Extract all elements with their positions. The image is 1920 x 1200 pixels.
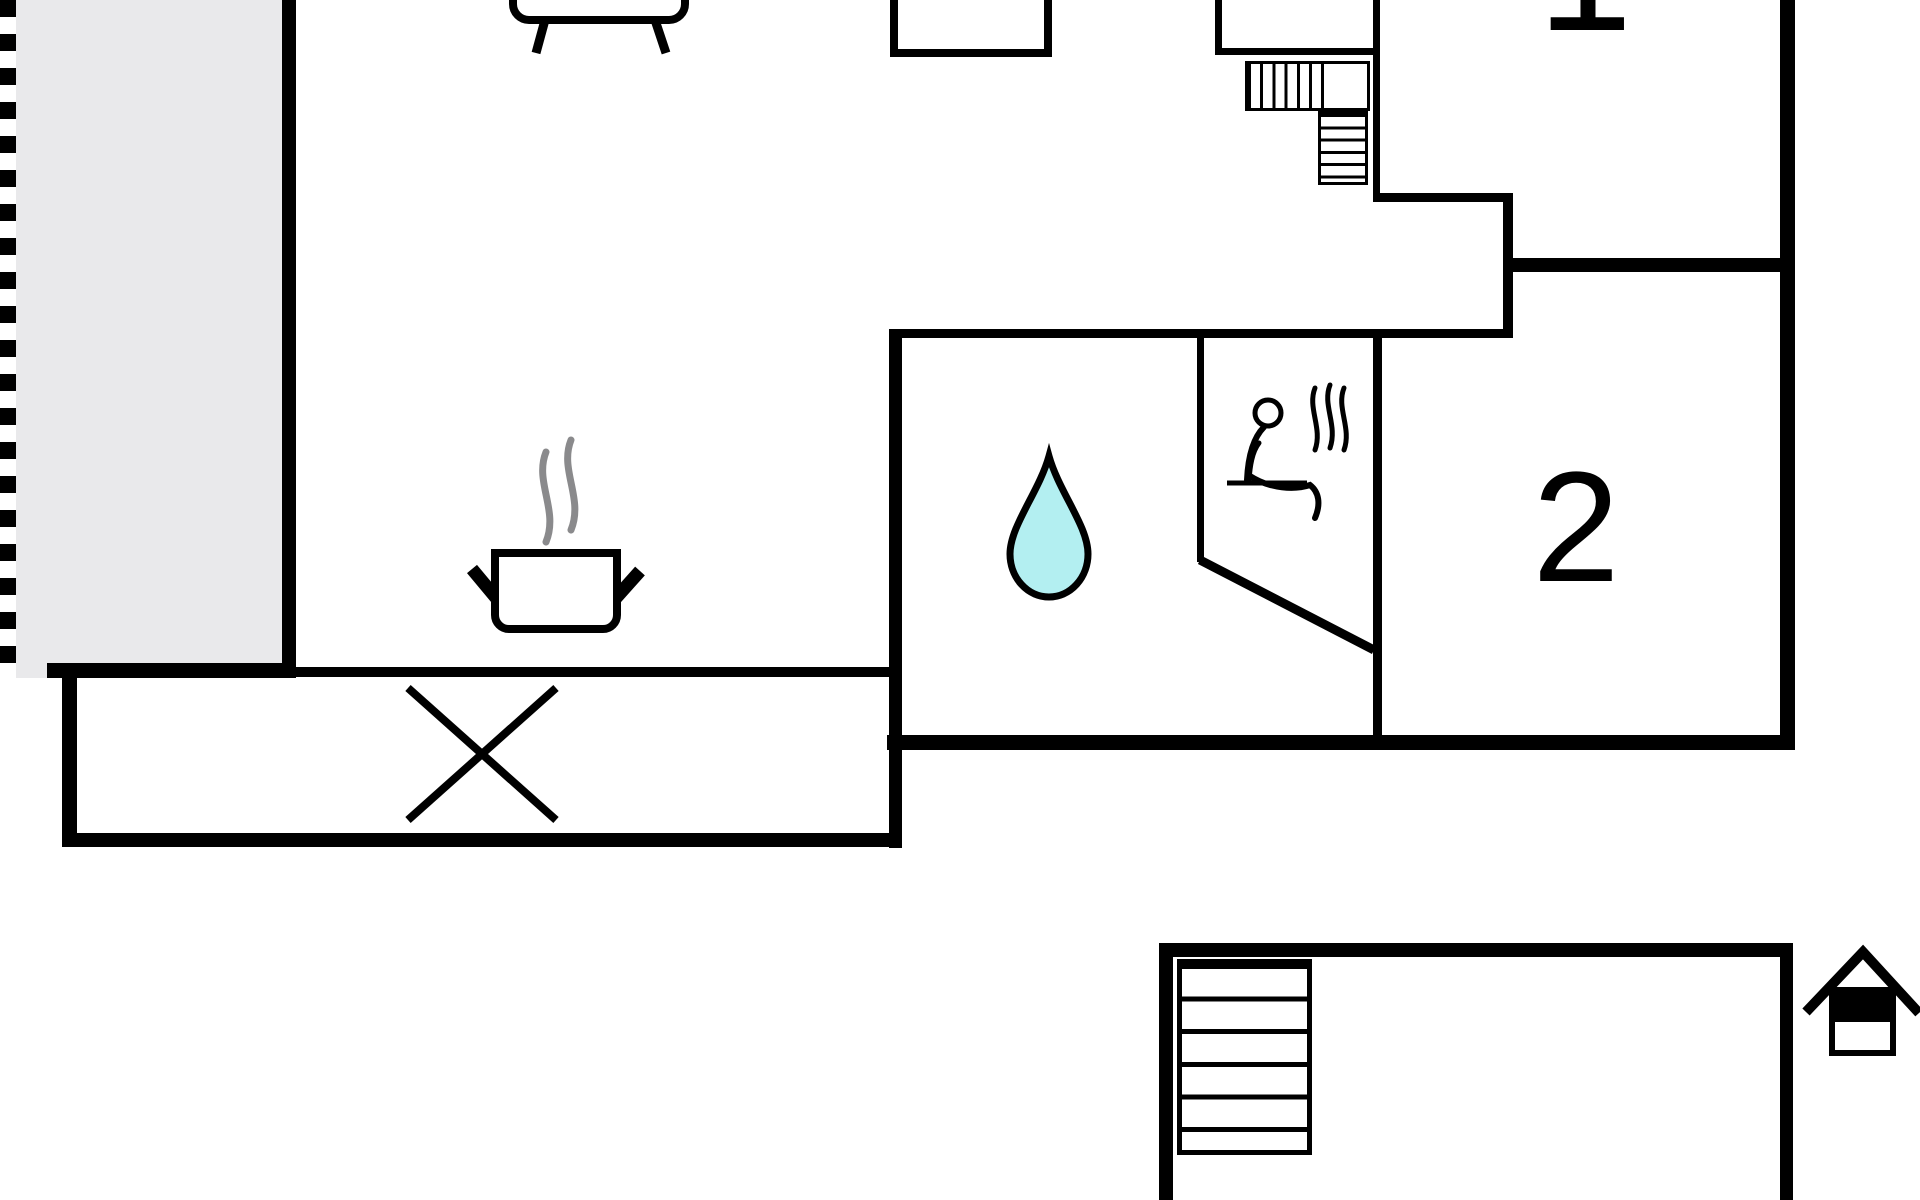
- outer-right-wall: [1780, 0, 1795, 750]
- stairs-landing-edge: [1321, 64, 1324, 108]
- stairs-icon: [1245, 61, 1370, 111]
- house-north-icon: [1795, 935, 1920, 1060]
- bedroom-2-label: 2: [1500, 455, 1652, 600]
- sauna-left-wall: [1197, 338, 1204, 562]
- closet-b-left-wall: [1215, 0, 1222, 55]
- corridor-top-wall: [296, 667, 893, 677]
- closet-a-bottom-wall: [890, 49, 1052, 57]
- stairs-icon: [1318, 111, 1368, 185]
- terrace-bottom-wall: [47, 663, 296, 678]
- stairs-treads: [1248, 64, 1324, 108]
- bathroom-left-wall: [889, 329, 902, 848]
- stairs-icon: [1177, 959, 1312, 1155]
- basement-top-wall: [1159, 943, 1793, 957]
- terrace-dashed-edge: [0, 0, 16, 679]
- closet-b-right-wall: [1373, 0, 1380, 202]
- floor-plan-canvas: 1 2: [0, 0, 1920, 1200]
- basement-left-wall: [1159, 943, 1173, 1200]
- corridor-left-wall: [62, 678, 77, 847]
- terrace-right-wall: [282, 0, 296, 678]
- closet-b-bottom-wall: [1215, 48, 1380, 55]
- sauna-right-wall: [1373, 338, 1382, 750]
- bathroom-top-wall: [889, 329, 1513, 338]
- x-marker-icon: [398, 678, 566, 830]
- bedroom-divider-wall: [1507, 258, 1782, 272]
- sofa-icon: [500, 0, 700, 60]
- sauna-person-icon: [1215, 380, 1355, 530]
- corridor-bottom-wall: [62, 833, 902, 847]
- terrace-floor: [16, 0, 296, 678]
- south-bottom-wall: [887, 735, 1795, 750]
- bedroom-1-label: 1: [1510, 0, 1660, 41]
- hall-jog-wall: [1373, 193, 1513, 202]
- stove-pot-icon: [455, 430, 655, 645]
- water-drop-icon: [1000, 448, 1098, 608]
- sauna-door-diagonal: [1192, 552, 1382, 658]
- basement-right-wall: [1780, 957, 1793, 1200]
